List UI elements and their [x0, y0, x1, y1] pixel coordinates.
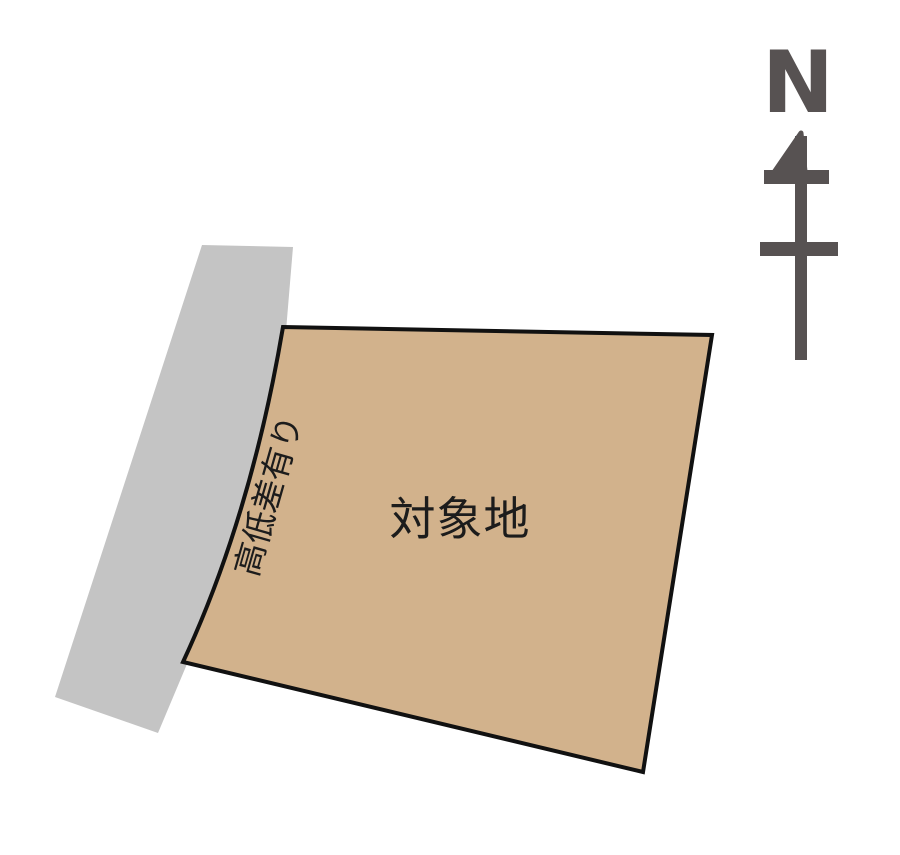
north-compass: N [760, 33, 838, 360]
site-plan-drawing: N [0, 0, 900, 855]
site-label: 対象地 [390, 483, 531, 549]
site-plan-canvas: N 対象地 高低差有り [0, 0, 900, 855]
compass-n-label: N [762, 33, 834, 133]
